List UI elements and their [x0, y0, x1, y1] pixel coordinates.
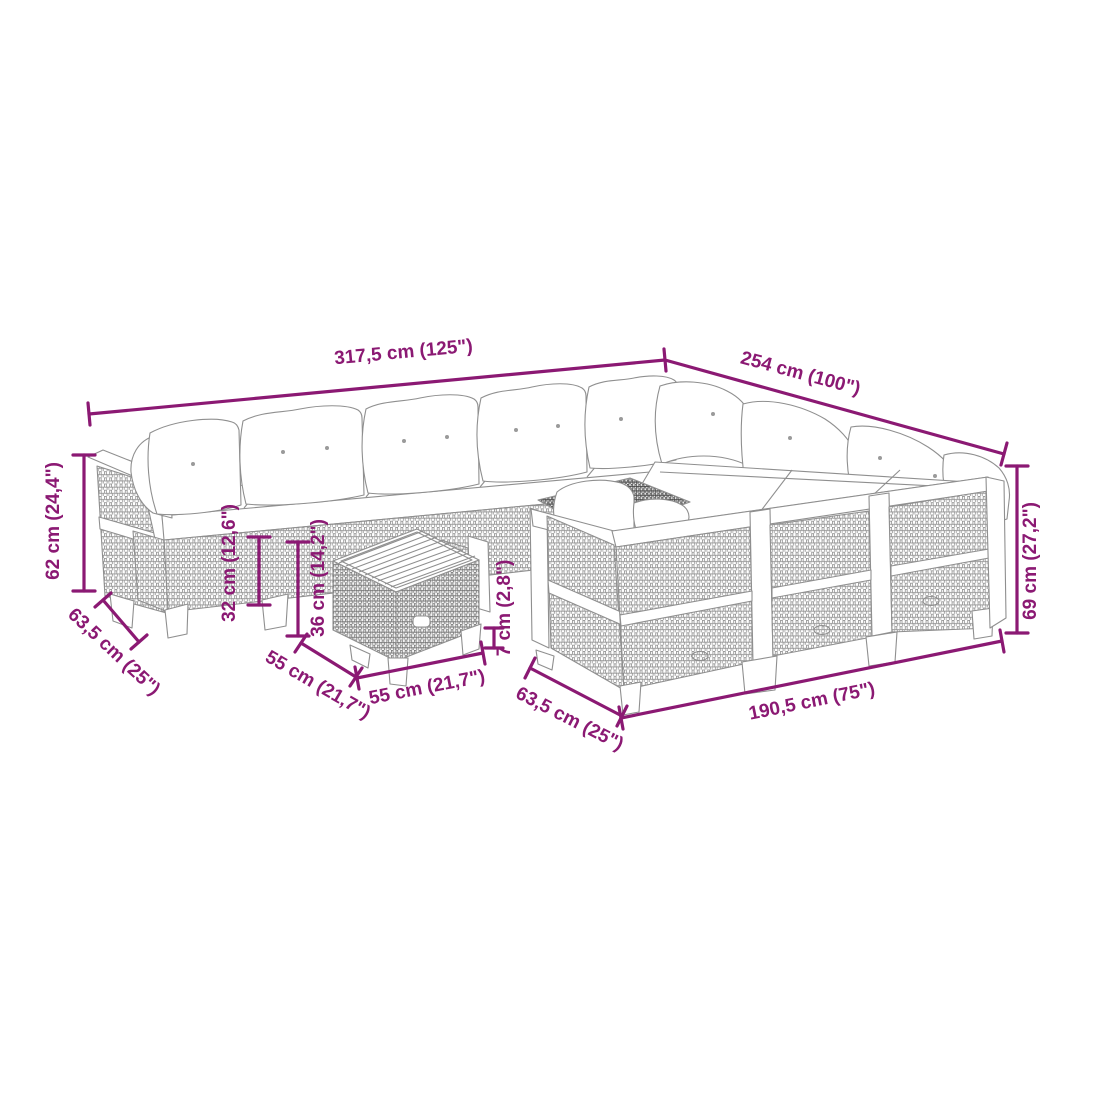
svg-text:69 cm (27,2"): 69 cm (27,2"): [1020, 502, 1041, 620]
svg-text:7 cm (2,8"): 7 cm (2,8"): [494, 560, 515, 657]
svg-text:36 cm (14,2"): 36 cm (14,2"): [308, 519, 329, 637]
svg-text:32 cm (12,6"): 32 cm (12,6"): [219, 504, 240, 622]
svg-text:62 cm (24,4"): 62 cm (24,4"): [43, 462, 64, 580]
